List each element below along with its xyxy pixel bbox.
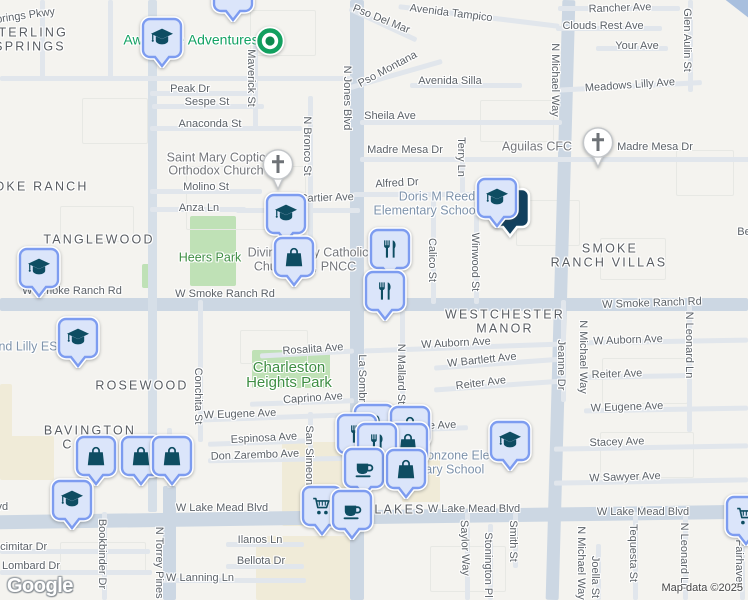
street-label: Lombard Dr [2,561,60,573]
area-label: RANCH VILLAS [551,256,668,269]
area-label: ROSEWOOD [95,379,188,392]
shopping-bag-pin[interactable] [384,447,428,504]
shopping-bag-pin[interactable] [150,434,194,491]
area-label: WESTCHESTER [445,308,565,321]
street-label: W Eugene Ave [591,401,664,415]
street-label: N Bronco St [300,116,312,175]
street-label: Jeanne Dr [554,340,566,391]
poi-label[interactable]: Aguilas CFC [502,140,572,153]
street-label: Bookbinder Dr [95,519,107,589]
street-label: W Smoke Ranch Rd [175,289,275,301]
street-label: Your Ave [615,41,658,53]
street-label: N Michael Way [576,320,588,394]
church-pin[interactable] [578,124,618,175]
city-block [82,98,148,144]
street-label: Conchita St [191,368,203,425]
shopping-cart-pin[interactable] [724,494,748,551]
street-label: Peak Dr [170,84,210,96]
commercial-area [0,436,54,480]
street-label: N Michael Way [574,526,586,600]
street-label: W Lanning Ln [166,573,234,585]
poi-label[interactable]: nd Lilly ES [0,340,58,353]
street-label: Sheila Ave [364,111,416,123]
commercial-area [0,384,12,440]
park-label[interactable]: Heights Park [246,375,332,391]
coffee-pin[interactable] [330,488,374,545]
street-label: Avenida Silla [418,76,481,88]
street-label: Calico St [425,238,437,282]
street-label: N Torrey Pines Dr [152,527,164,600]
street-label: Bellota Dr [237,556,285,568]
graduation-cap-pin[interactable] [50,478,94,535]
street-label: N Jones Blvd [340,66,352,131]
street-label: Molino St [183,182,229,194]
street-label: Winwood St [468,233,480,292]
area-label: LAKES [374,503,425,516]
poi-label[interactable]: Doris M Reed [399,190,475,203]
map-canvas[interactable]: Springs PkwyPso Del MarAvenida TampicoRa… [0,0,748,600]
street-label: W Auborn Ave [593,334,663,348]
area-label: TANGLEWOOD [43,233,154,246]
street-label: Joella St [588,556,600,598]
street-label: Reiter Ave [592,368,643,381]
park-label[interactable]: Heers Park [179,251,242,264]
graduation-cap-pin[interactable] [475,176,519,233]
street-label: Anza Ln [179,203,219,215]
street-label: Rancher Ave [588,2,651,16]
street-label: Stacey Ave [589,436,644,449]
street-label: Caprino Ave [283,391,343,407]
map-attribution: Map data ©2025 [662,582,744,594]
street-label: Reiter Ave [455,375,507,393]
shopping-bag-pin[interactable] [272,235,316,292]
street-label: W Lake Mead Blvd [176,503,268,515]
area-label: SMOKE RANCH [0,180,89,193]
green-poi-dot[interactable] [254,25,286,62]
street-label: N Michael Way [548,43,560,117]
restaurant-pin[interactable] [363,269,407,326]
city-block [602,358,688,404]
street-label: N Leonard Ln [677,523,689,590]
street-label: Avenida Tampico [409,3,493,25]
street-label: W Lake Mead Blvd [597,507,689,519]
street-label: Madre Mesa Dr [367,145,443,157]
street-label: Be [737,227,748,239]
street-label: Rosalita Ave [282,342,344,358]
church-pin[interactable] [258,146,298,197]
graduation-cap-pin[interactable] [56,316,100,373]
street-label: Tequesta St [626,524,638,582]
street-label: Ilanos Ln [238,535,283,547]
street-label: Sespe St [185,97,230,109]
street-label: Smith St [506,520,518,562]
graduation-cap-pin[interactable] [211,0,255,27]
street-label: Scimitar Dr [0,542,47,554]
street-label: W Bartlett Ave [447,352,517,371]
green-dot-icon [256,27,283,54]
minor-road [108,0,113,78]
graduation-cap-pin[interactable] [488,419,532,476]
google-logo[interactable]: Google [7,575,73,598]
map-layers: Springs PkwyPso Del MarAvenida TampicoRa… [0,0,748,600]
poi-label[interactable]: Elementary School [374,204,479,217]
street-label: W Lake Mead Blvd [428,504,520,516]
street-label: N Leonard Ln [682,312,694,379]
street-label: Anaconda St [179,119,242,131]
street-label: Terry Ln [454,137,466,177]
minor-road [0,76,352,81]
area-label: SPRINGS [0,40,66,53]
area-label: STERLING [0,26,68,39]
street-label: Meadows Lilly Ave [585,77,676,95]
street-label: W Lake Mead Blvd [0,502,8,514]
graduation-cap-pin[interactable] [140,16,184,73]
street-label: Madre Mesa Dr [617,142,693,154]
street-label: Glen Aulin St [680,8,692,72]
area-label: SMOKE [582,242,638,255]
street-label: Springs Pkwy [0,7,56,28]
street-label: Saylor Way [457,520,470,576]
minor-road [360,157,748,162]
area-label: MANOR [476,322,534,335]
poi-label[interactable]: tary School [422,463,485,476]
street-label: Stonington Pl [481,532,493,597]
area-label: C [62,438,73,451]
street-label: Clouds Rest Ave [562,21,643,33]
graduation-cap-pin[interactable] [17,246,61,303]
street-label: N Mallard St [394,344,406,405]
poi-label[interactable]: Orthodox Church [168,164,263,177]
